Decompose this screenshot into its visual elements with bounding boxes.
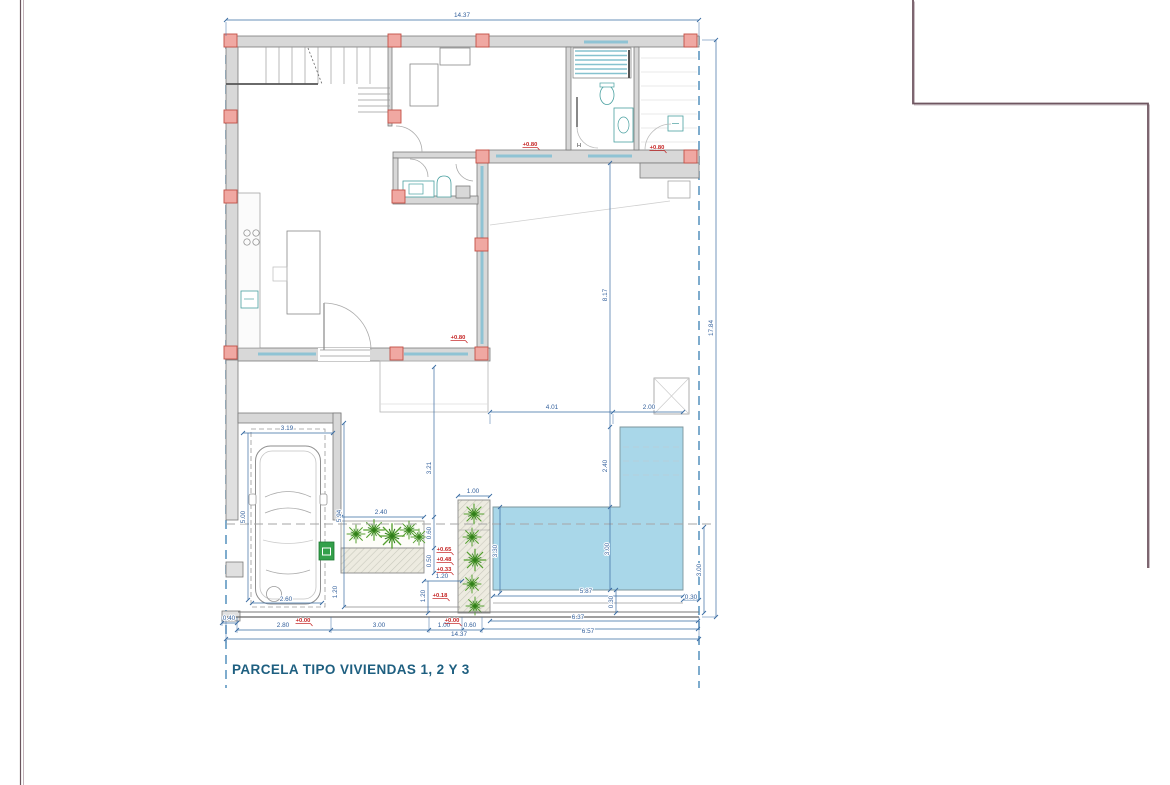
mirror-right [320,494,327,505]
dim-label: 0.30 [608,595,615,608]
vanity [403,181,434,197]
kitchen-sink-icon [241,291,258,308]
planter-box [341,548,424,573]
dim-label: 5.87 [580,588,593,595]
swimming-pool [493,427,683,590]
dim-label: 0.60 [426,526,433,539]
utility-box [654,378,689,414]
bathroom-top [573,48,633,148]
gate-meter-box [319,542,334,560]
level-label: +0.80 [451,335,466,341]
door-arc [456,164,473,181]
level-tick [448,599,450,601]
dim-label: 0.60 [464,622,477,629]
dim-label: 8.17 [602,288,609,301]
dim-label: 0.50 [426,554,433,567]
dim-label: 3.19 [281,425,294,432]
dim-label: 2.40 [375,509,388,516]
vanity [614,108,633,142]
level-tick [466,341,468,343]
dim-label: 17.84 [708,320,715,336]
level-tick [452,573,454,575]
dim-label: 0.30 [685,594,698,601]
dim-label: 3.30 [492,544,499,557]
kitchen [238,193,320,348]
hall-closet [410,64,438,106]
dim-label: 3.21 [426,461,433,474]
level-label: +0.18 [433,593,448,599]
door-arc [324,303,371,350]
kitchen-counter [238,193,260,348]
level-tick [311,624,313,626]
level-label: +0.80 [650,145,665,151]
sheet-frame [21,0,1150,785]
dim-label: 3.00 [604,542,611,555]
carport [249,429,334,607]
misc-label: H [577,143,581,149]
level-label: +0.65 [437,547,452,553]
stair-direction-line [308,48,322,84]
dim-label: 1.20 [436,573,449,580]
dim-label: 1.20 [332,585,339,598]
level-tick [460,624,462,626]
dressing-room [641,58,697,150]
dim-label: 3.00 [373,622,386,629]
level-label: +0.00 [296,618,311,624]
porch [380,181,690,412]
mirror-left [249,494,256,505]
dim-label: 2.60 [280,596,293,603]
hall-door-arc [396,126,422,152]
dim-label: 6.37 [572,614,585,621]
misc-labels: H [577,143,581,149]
level-label: +0.00 [445,618,460,624]
hall-cabinet [440,48,470,65]
dim-label: 14.37 [451,631,467,638]
toilet-icon [600,86,614,105]
level-label: +0.80 [523,142,538,148]
dim-label: 4.01 [546,404,559,411]
dim-label: 0.40 [223,615,236,622]
level-label: +0.48 [437,557,452,563]
dim-label: 1.20 [420,589,427,602]
floor-plan-canvas: 14.3717.848.172.403.004.012.003.305.870.… [0,0,1170,785]
site-plan-drawing: 14.3717.848.172.403.004.012.003.305.870.… [0,0,1170,785]
door-arc [410,159,428,177]
car [249,446,327,604]
terrain-line [490,201,670,225]
dim-label: 14.37 [454,12,470,19]
dim-label: 5.94 [336,509,343,522]
plan-title: PARCELA TIPO VIVIENDAS 1, 2 Y 3 [232,662,470,677]
dim-label: 1.00 [467,488,480,495]
dim-label: 3.00 [696,563,703,576]
toilet-icon [437,176,451,197]
level-tick [452,553,454,555]
dim-label: 5.00 [240,510,247,523]
staircase [226,47,470,152]
dim-label: 6.57 [582,628,595,635]
level-tick [452,563,454,565]
level-label: +0.33 [437,567,452,573]
kitchen-island [287,231,320,314]
dim-label: 2.80 [277,622,290,629]
dim-label: 2.00 [643,404,656,411]
dim-label: 2.40 [602,459,609,472]
